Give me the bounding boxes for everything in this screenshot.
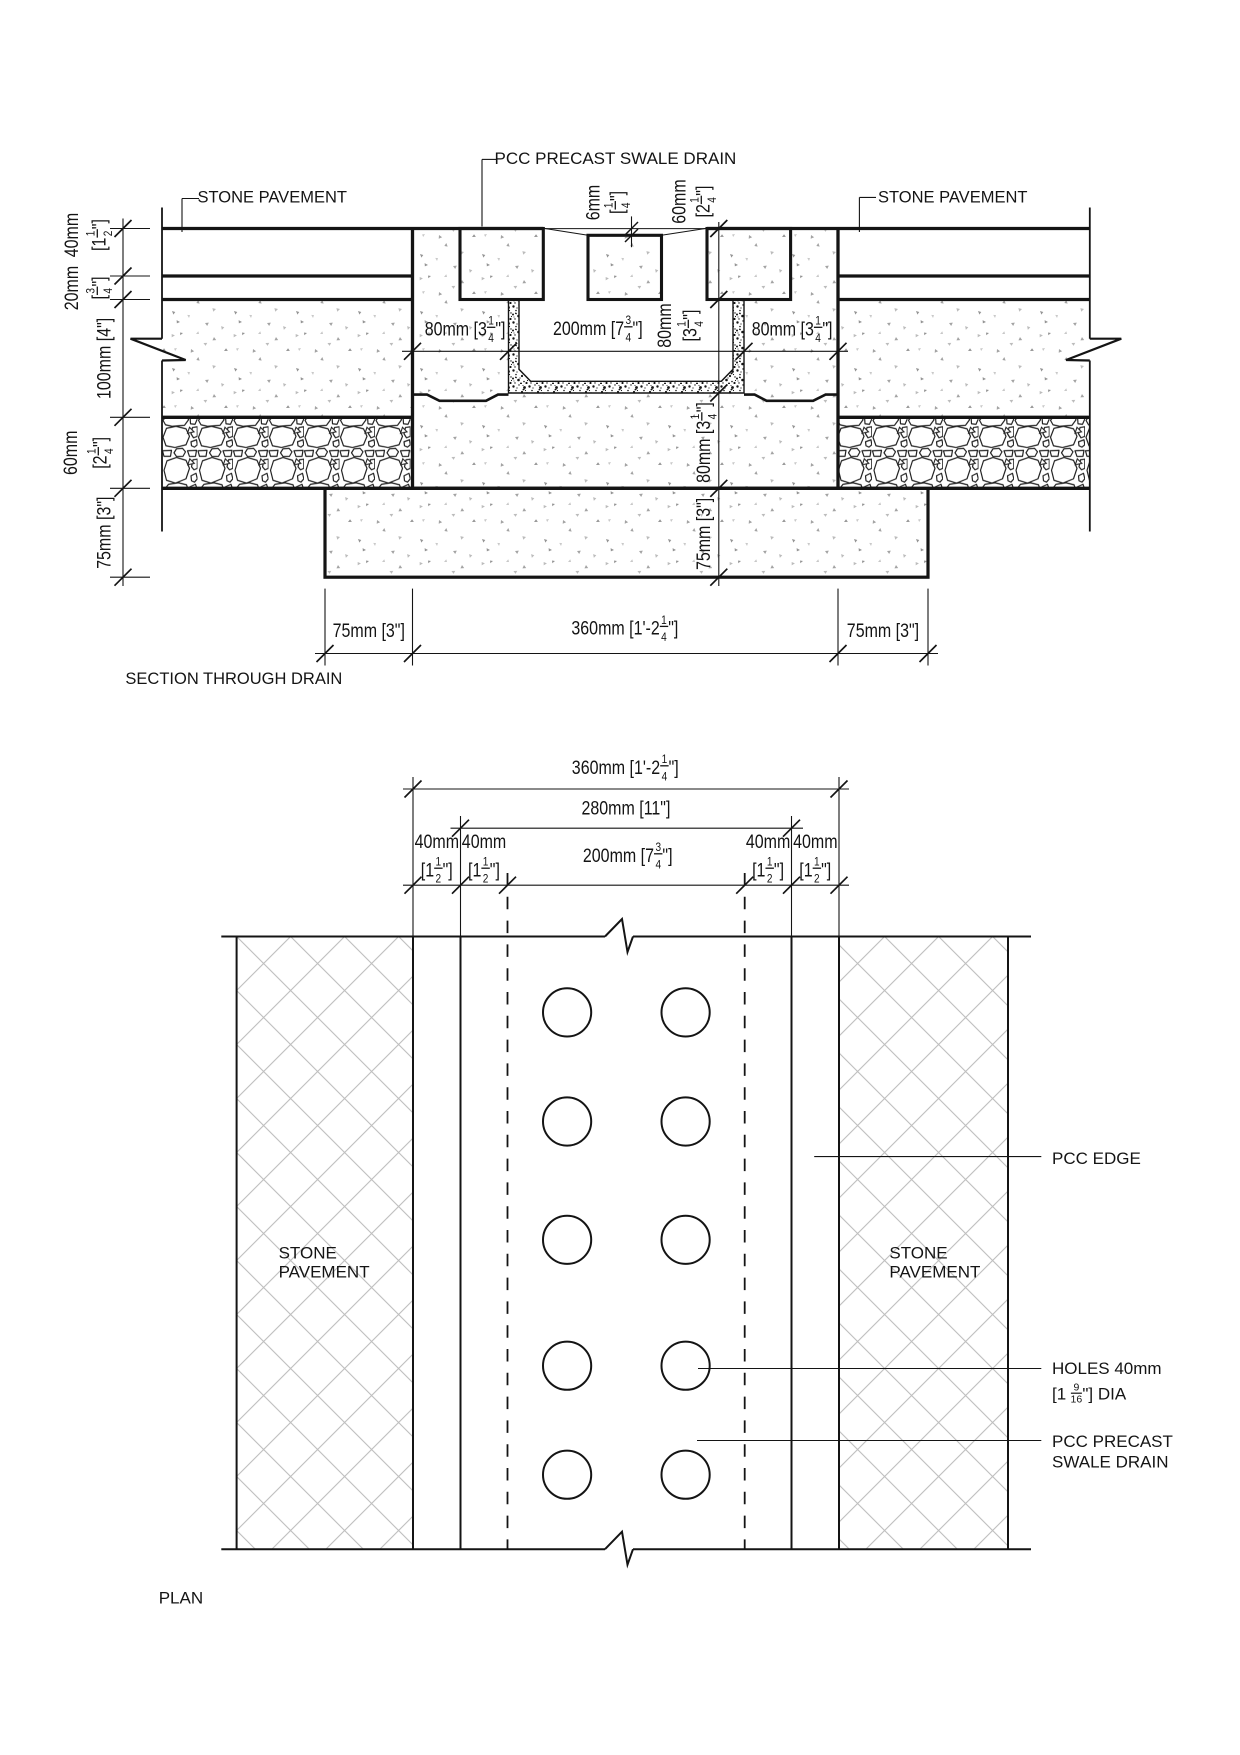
svg-text:4: 4: [662, 770, 668, 783]
svg-text:[1: [1: [799, 859, 812, 881]
svg-text:1: 1: [661, 614, 667, 627]
svg-text:1: 1: [676, 321, 689, 327]
svg-text:"]: "]: [668, 617, 678, 639]
svg-text:1: 1: [767, 856, 773, 869]
svg-text:1: 1: [86, 448, 99, 454]
svg-text:PCC PRECAST: PCC PRECAST: [1052, 1432, 1173, 1451]
svg-text:75mm [3"]: 75mm [3"]: [333, 620, 405, 642]
svg-text:[1: [1: [421, 859, 434, 881]
svg-text:"]: "]: [88, 219, 110, 229]
svg-text:80mm [3: 80mm [3: [752, 318, 814, 340]
svg-text:9: 9: [1073, 1382, 1079, 1394]
svg-text:3: 3: [655, 841, 661, 854]
svg-text:4: 4: [655, 858, 661, 871]
svg-text:3: 3: [626, 314, 632, 327]
svg-text:360mm [1'-2: 360mm [1'-2: [571, 617, 659, 639]
svg-text:STONE: STONE: [279, 1244, 337, 1263]
svg-text:1: 1: [85, 231, 98, 237]
svg-text:1: 1: [815, 315, 821, 328]
svg-text:4: 4: [103, 448, 116, 454]
svg-text:"]: "]: [822, 318, 832, 340]
svg-text:STONE: STONE: [889, 1244, 947, 1263]
svg-text:3: 3: [85, 288, 98, 294]
svg-text:40mm: 40mm: [415, 830, 459, 852]
svg-text:2: 2: [767, 873, 773, 886]
svg-text:40mm: 40mm: [61, 213, 83, 257]
svg-text:1: 1: [689, 414, 702, 420]
svg-text:80mm: 80mm: [654, 303, 676, 347]
svg-text:360mm [1'-2: 360mm [1'-2: [572, 757, 660, 779]
svg-text:2: 2: [483, 873, 489, 886]
svg-text:[1: [1: [468, 859, 481, 881]
svg-text:PAVEMENT: PAVEMENT: [889, 1263, 980, 1282]
svg-text:"]: "]: [606, 191, 628, 201]
svg-text:1: 1: [662, 753, 668, 766]
svg-text:75mm [3"]: 75mm [3"]: [847, 620, 919, 642]
svg-text:"]: "]: [821, 859, 831, 881]
svg-text:6mm: 6mm: [582, 185, 604, 221]
svg-text:40mm: 40mm: [462, 830, 506, 852]
svg-text:1: 1: [483, 856, 489, 869]
svg-text:200mm [7: 200mm [7: [583, 845, 654, 867]
svg-text:[2: [2: [692, 204, 714, 217]
svg-text:"]: "]: [89, 437, 111, 447]
svg-text:STONE PAVEMENT: STONE PAVEMENT: [878, 188, 1027, 206]
svg-text:STONE PAVEMENT: STONE PAVEMENT: [198, 188, 347, 206]
svg-text:"]: "]: [490, 859, 500, 881]
svg-text:4: 4: [706, 414, 719, 420]
svg-text:[1: [1: [752, 859, 765, 881]
svg-text:1: 1: [689, 197, 702, 203]
svg-text:[1: [1: [88, 238, 110, 251]
svg-text:SWALE DRAIN: SWALE DRAIN: [1052, 1453, 1169, 1472]
svg-text:1: 1: [814, 856, 820, 869]
svg-text:[: [: [606, 209, 628, 213]
svg-text:PAVEMENT: PAVEMENT: [279, 1263, 370, 1282]
svg-text:1: 1: [603, 202, 616, 208]
svg-text:2: 2: [102, 231, 115, 237]
svg-text:[2: [2: [89, 455, 111, 468]
svg-text:"]: "]: [679, 310, 701, 320]
svg-text:200mm [7: 200mm [7: [553, 318, 624, 340]
svg-text:"]: "]: [693, 402, 715, 412]
svg-text:"]: "]: [692, 186, 714, 196]
svg-text:2: 2: [436, 873, 442, 886]
svg-text:"]: "]: [662, 845, 672, 867]
svg-text:[3: [3: [679, 328, 701, 341]
svg-text:"]: "]: [633, 318, 643, 340]
svg-text:40mm: 40mm: [746, 830, 790, 852]
svg-text:60mm: 60mm: [668, 179, 690, 223]
svg-text:"]: "]: [88, 276, 110, 286]
svg-text:16: 16: [1071, 1394, 1083, 1406]
svg-text:4: 4: [693, 321, 706, 327]
svg-text:1: 1: [488, 315, 494, 328]
svg-text:SECTION THROUGH DRAIN: SECTION THROUGH DRAIN: [125, 670, 342, 688]
svg-text:PLAN: PLAN: [159, 1588, 203, 1607]
svg-text:"] DIA: "] DIA: [1082, 1385, 1126, 1404]
svg-text:PCC EDGE: PCC EDGE: [1052, 1149, 1141, 1168]
svg-text:HOLES 40mm: HOLES 40mm: [1052, 1359, 1162, 1378]
svg-text:100mm [4"]: 100mm [4"]: [93, 318, 115, 399]
svg-text:40mm: 40mm: [793, 830, 837, 852]
svg-text:2: 2: [814, 873, 820, 886]
svg-text:"]: "]: [495, 318, 505, 340]
svg-text:1: 1: [436, 856, 442, 869]
svg-text:4: 4: [706, 197, 719, 203]
svg-text:280mm [11"]: 280mm [11"]: [582, 797, 671, 819]
svg-text:60mm: 60mm: [60, 431, 82, 475]
svg-text:80mm [3: 80mm [3: [693, 421, 715, 483]
svg-text:[: [: [88, 295, 110, 299]
svg-text:"]: "]: [774, 859, 784, 881]
svg-text:[1: [1: [1052, 1385, 1066, 1404]
svg-text:75mm [3"]: 75mm [3"]: [93, 497, 115, 569]
svg-text:4: 4: [620, 202, 633, 208]
svg-text:4: 4: [661, 631, 667, 644]
svg-text:PCC PRECAST SWALE DRAIN: PCC PRECAST SWALE DRAIN: [495, 149, 737, 168]
svg-text:80mm [3: 80mm [3: [425, 318, 487, 340]
svg-text:75mm [3"]: 75mm [3"]: [693, 498, 715, 570]
svg-text:4: 4: [488, 332, 494, 345]
svg-text:"]: "]: [443, 859, 453, 881]
svg-text:20mm: 20mm: [61, 266, 83, 310]
svg-text:4: 4: [102, 288, 115, 294]
svg-text:4: 4: [815, 332, 821, 345]
svg-text:4: 4: [626, 331, 632, 344]
svg-text:"]: "]: [669, 757, 679, 779]
